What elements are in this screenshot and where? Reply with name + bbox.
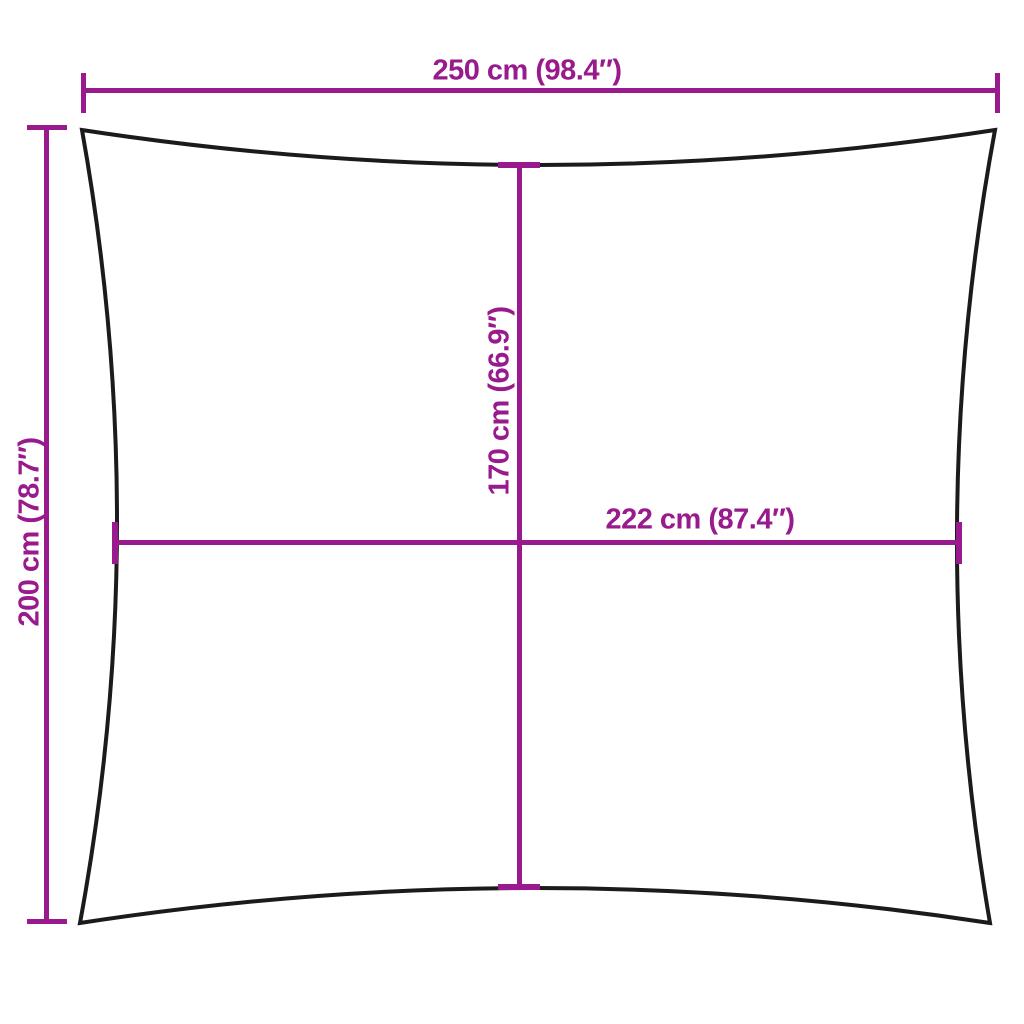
dimension-tick-top-left: [81, 73, 86, 113]
sail-shape-path: [80, 130, 995, 923]
dimension-tick-top-right: [995, 73, 1000, 113]
shade-sail-outline: [0, 0, 1024, 1024]
dimension-label-inner-height: 170 cm (66.9″): [484, 306, 517, 495]
dimension-tick-left-top: [27, 125, 67, 130]
dimension-line-top-width: [83, 88, 998, 93]
dimension-tick-inner-width-right: [956, 522, 962, 564]
dimension-label-inner-width: 222 cm (87.4″): [605, 504, 794, 537]
dimension-line-inner-height: [517, 165, 522, 888]
dimension-label-top-width: 250 cm (98.4″): [432, 55, 621, 88]
dimension-line-inner-width: [117, 540, 960, 545]
dimension-diagram: 250 cm (98.4″) 200 cm (78.7″) 170 cm (66…: [0, 0, 1024, 1024]
dimension-tick-inner-height-bottom: [498, 884, 540, 890]
dimension-tick-inner-width-left: [112, 522, 118, 564]
dimension-tick-left-bottom: [27, 919, 67, 924]
dimension-label-left-height: 200 cm (78.7″): [14, 437, 47, 626]
dimension-tick-inner-height-top: [498, 162, 540, 168]
